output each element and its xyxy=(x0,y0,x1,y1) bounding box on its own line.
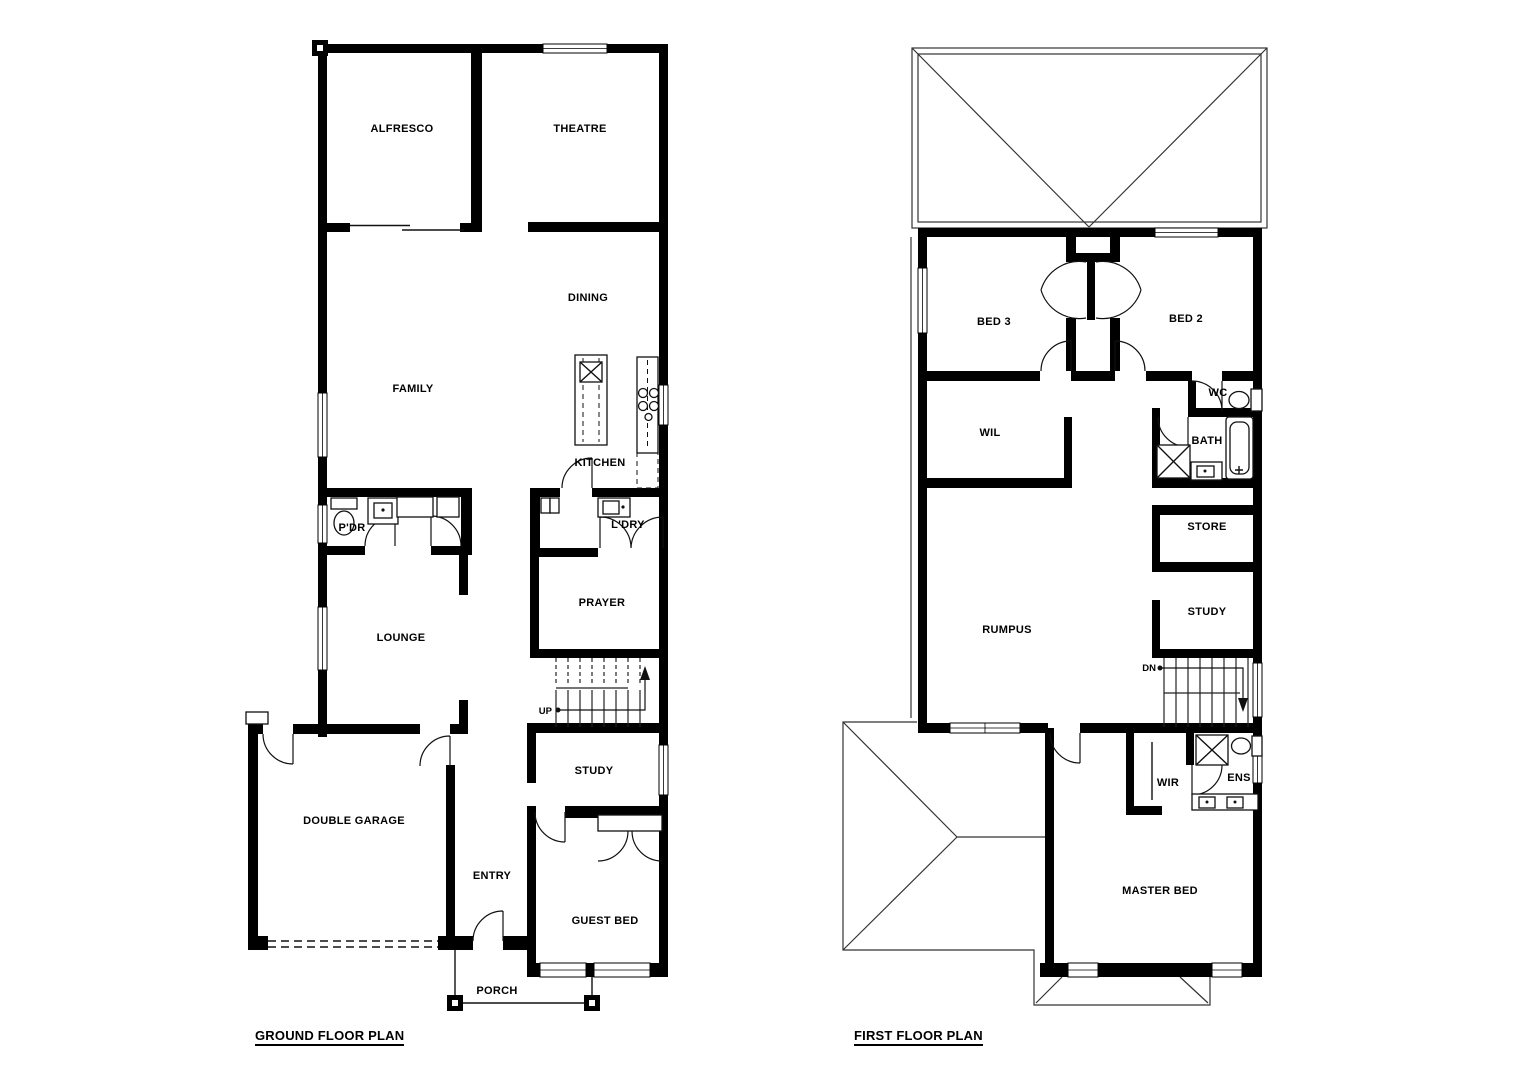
first-floor-fixtures xyxy=(1152,389,1262,810)
room-label-rumpus: RUMPUS xyxy=(982,624,1031,636)
room-label-study-first: STUDY xyxy=(1188,606,1227,618)
room-label-double-garage: DOUBLE GARAGE xyxy=(303,815,405,827)
room-label-dining: DINING xyxy=(568,292,608,304)
window-rumpus xyxy=(950,723,1020,733)
ground-floor-labels: ALFRESCO THEATRE DINING FAMILY KITCHEN P… xyxy=(303,123,645,997)
ground-floor-plan: ALFRESCO THEATRE DINING FAMILY KITCHEN P… xyxy=(246,40,668,1011)
room-label-lounge: LOUNGE xyxy=(377,632,426,644)
window-master-1 xyxy=(1068,963,1098,977)
room-label-entry: ENTRY xyxy=(473,870,512,882)
stair-label-up: UP xyxy=(539,706,553,717)
kitchen-bench xyxy=(637,357,659,488)
door-ens xyxy=(1192,765,1222,795)
door-entry-front xyxy=(473,911,503,941)
room-label-porch: PORCH xyxy=(476,985,517,997)
stair-down-arrow xyxy=(1238,698,1248,712)
window-family xyxy=(318,393,327,457)
alfresco-post-icon xyxy=(312,40,328,56)
stairs-up xyxy=(556,658,651,727)
first-floor-walls xyxy=(918,228,1262,977)
first-floor-plan: BED 3 BED 2 WC WIL BATH STORE STUDY RUMP… xyxy=(843,48,1267,1005)
room-label-wir: WIR xyxy=(1157,777,1179,789)
window-master-2 xyxy=(1212,963,1242,977)
room-label-store: STORE xyxy=(1187,521,1226,533)
roof-lower-hip xyxy=(843,722,1210,1005)
ens-toilet-icon xyxy=(1232,736,1263,756)
porch-post-icon xyxy=(447,995,463,1011)
garage-step xyxy=(246,712,268,724)
pdr-basin-icon xyxy=(368,498,398,524)
wip-robe xyxy=(397,497,459,517)
stairs-down xyxy=(1158,658,1249,727)
ens-vanity-icon xyxy=(1192,794,1258,810)
room-label-ens: ENS xyxy=(1227,772,1251,784)
room-label-bath: BATH xyxy=(1192,435,1223,447)
window-guest-2 xyxy=(594,963,650,977)
window-pdr xyxy=(318,505,327,543)
window-kitchen xyxy=(659,385,668,425)
door-family xyxy=(431,516,461,546)
room-label-guest-bed: GUEST BED xyxy=(572,915,639,927)
window-stairs xyxy=(1253,663,1262,717)
bath-vanity-icon xyxy=(1191,462,1222,480)
room-label-theatre: THEATRE xyxy=(553,123,606,135)
door-bath xyxy=(1158,417,1188,447)
window-lounge xyxy=(318,607,327,670)
room-label-wil: WIL xyxy=(979,427,1000,439)
window-theatre xyxy=(543,44,607,53)
roof-top xyxy=(912,48,1267,228)
room-label-ldry: L'DRY xyxy=(611,519,645,531)
room-label-bed2: BED 2 xyxy=(1169,313,1203,325)
stair-up-arrow xyxy=(640,666,650,680)
room-label-alfresco: ALFRESCO xyxy=(371,123,434,135)
ground-floor-plan-title: GROUND FLOOR PLAN xyxy=(255,1028,404,1046)
kitchen-island xyxy=(575,355,607,445)
door-garage-side xyxy=(263,734,293,764)
room-label-prayer: PRAYER xyxy=(579,597,626,609)
room-label-pdr: P'DR xyxy=(338,522,365,534)
ens-shower-icon xyxy=(1196,735,1228,765)
room-label-bed3: BED 3 xyxy=(977,316,1011,328)
room-label-kitchen: KITCHEN xyxy=(575,457,626,469)
guest-robe xyxy=(598,815,662,861)
door-guest-bed xyxy=(535,812,565,842)
garage-door xyxy=(268,941,438,947)
window-bed3-left xyxy=(918,268,927,333)
floor-plan-sheet: ALFRESCO THEATRE DINING FAMILY KITCHEN P… xyxy=(0,0,1536,1087)
room-label-master-bed: MASTER BED xyxy=(1122,885,1198,897)
door-garage-internal xyxy=(420,736,450,766)
bathtub-icon xyxy=(1226,417,1253,479)
room-label-family: FAMILY xyxy=(392,383,433,395)
window-bed2-top xyxy=(1155,228,1218,237)
porch-post-icon xyxy=(584,995,600,1011)
room-label-study-ground: STUDY xyxy=(575,765,614,777)
first-floor-windows xyxy=(918,228,1262,977)
room-label-wc: WC xyxy=(1209,387,1228,399)
door-master-hall xyxy=(1050,733,1080,763)
door-alfresco-slider xyxy=(350,226,464,231)
bath-shower-icon xyxy=(1157,445,1190,478)
window-guest-1 xyxy=(540,963,586,977)
laundry-trough-icon xyxy=(598,498,630,517)
window-study-ground xyxy=(659,745,668,795)
stair-label-dn: DN xyxy=(1142,663,1156,674)
wc-toilet-icon xyxy=(1229,389,1262,411)
laundry-cupboards xyxy=(541,498,559,513)
first-floor-plan-title: FIRST FLOOR PLAN xyxy=(854,1028,983,1046)
